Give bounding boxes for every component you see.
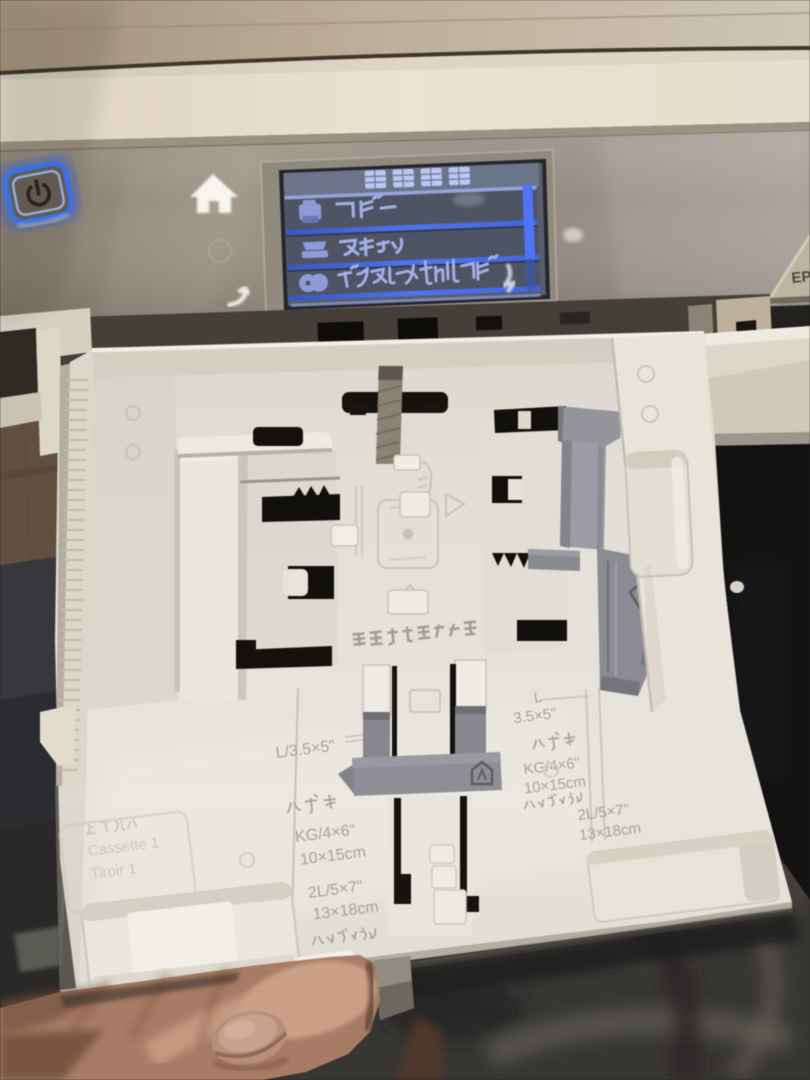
svg-text:EP: EP xyxy=(791,268,810,287)
